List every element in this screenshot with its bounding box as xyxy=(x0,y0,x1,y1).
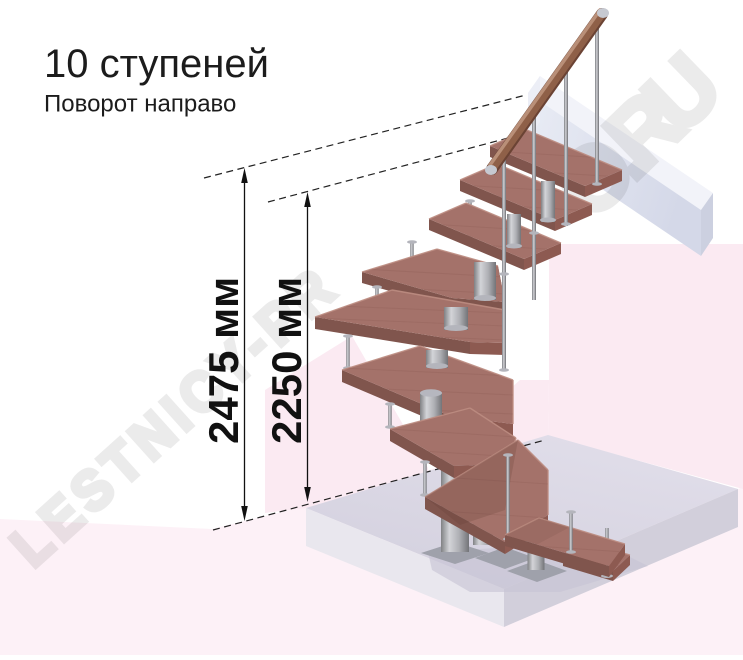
svg-text:10 ступеней: 10 ступеней xyxy=(44,42,269,86)
svg-text:2250 мм: 2250 мм xyxy=(263,277,310,444)
svg-text:Поворот направо: Поворот направо xyxy=(44,91,236,118)
svg-text:2475 мм: 2475 мм xyxy=(200,277,247,444)
